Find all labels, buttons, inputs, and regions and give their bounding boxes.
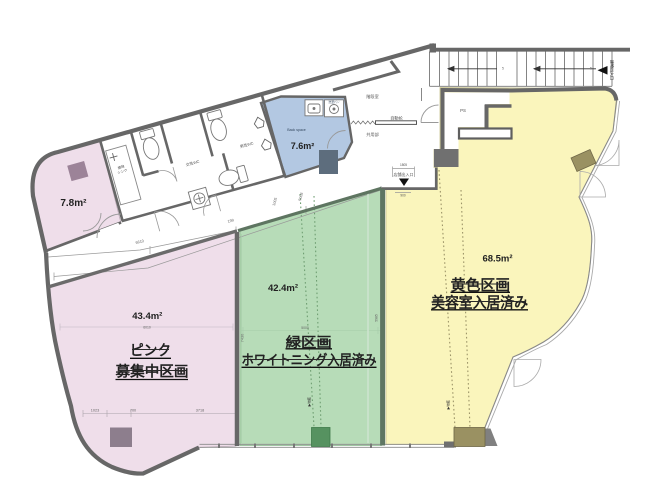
svg-text:5: 5: [590, 67, 592, 71]
svg-text:Back space: Back space: [287, 128, 306, 132]
svg-text:900: 900: [400, 194, 406, 198]
svg-text:7.6m²: 7.6m²: [291, 141, 315, 151]
svg-text:43.4m²: 43.4m²: [132, 311, 162, 322]
svg-text:5: 5: [502, 67, 504, 71]
svg-text:▶物販: ▶物販: [446, 399, 451, 409]
svg-text:7430: 7430: [241, 334, 245, 342]
svg-text:募集中区画: 募集中区画: [114, 363, 188, 381]
svg-text:5000: 5000: [301, 326, 309, 330]
svg-text:共用部: 共用部: [366, 131, 379, 138]
svg-text:階段室: 階段室: [366, 93, 379, 100]
svg-text:▶物販: ▶物販: [307, 396, 312, 406]
svg-text:700: 700: [130, 409, 136, 413]
svg-text:1023: 1023: [91, 409, 99, 413]
svg-text:美容室入居済み: 美容室入居済み: [431, 294, 528, 312]
svg-text:42.4m²: 42.4m²: [268, 283, 298, 294]
svg-text:建物出入口: 建物出入口: [610, 60, 616, 80]
svg-text:6010: 6010: [143, 326, 151, 330]
svg-text:5985: 5985: [375, 314, 379, 322]
svg-text:7.8m²: 7.8m²: [60, 198, 87, 209]
svg-text:緑区画: 緑区画: [286, 334, 332, 350]
svg-text:自動抡: 自動抡: [390, 114, 403, 121]
svg-text:68.5m²: 68.5m²: [482, 254, 512, 265]
svg-text:1805: 1805: [400, 163, 407, 167]
svg-text:店舗出入口: 店舗出入口: [394, 171, 414, 177]
svg-text:PS: PS: [460, 108, 466, 113]
svg-text:3718: 3718: [196, 409, 204, 413]
svg-text:ピンク: ピンク: [130, 343, 171, 360]
svg-text:黄色区画: 黄色区画: [451, 276, 511, 294]
svg-text:洗濃パン: 洗濃パン: [328, 100, 340, 104]
